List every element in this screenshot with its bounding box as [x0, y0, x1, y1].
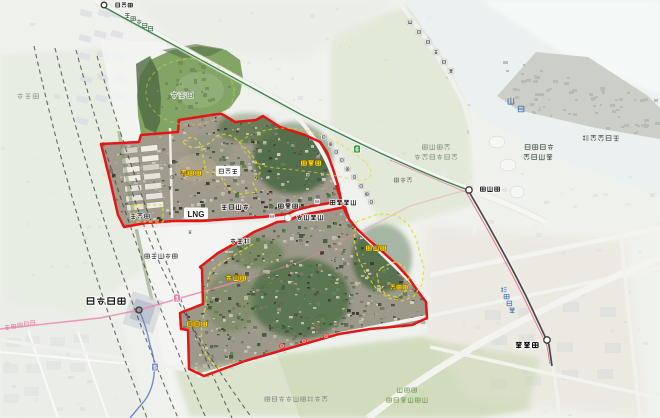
svg-text:5: 5: [153, 365, 157, 372]
svg-text:LNG: LNG: [188, 210, 205, 219]
svg-text:1: 1: [175, 296, 179, 303]
svg-text:6: 6: [355, 147, 359, 154]
